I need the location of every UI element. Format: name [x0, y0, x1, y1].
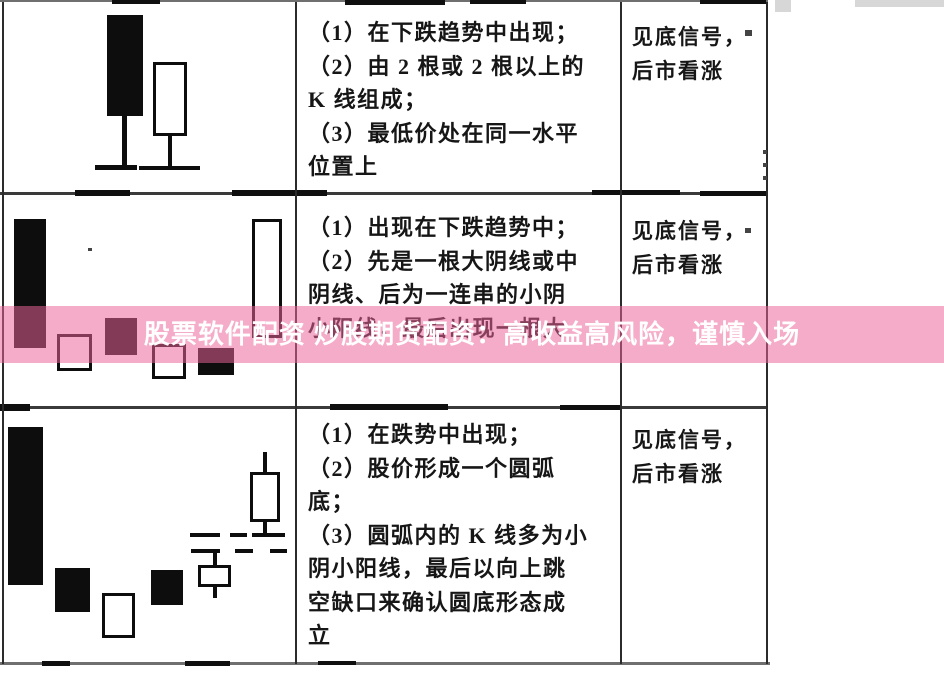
row-2-signal: 见底信号， 后市看涨: [632, 214, 747, 282]
table-border-bottom-segment: [42, 661, 70, 666]
desc-line: （1）出现在下跌趋势中；: [308, 211, 579, 245]
signal-line: 见底信号，: [632, 214, 747, 248]
table-border-top-segment: [700, 0, 766, 4]
row-separator-1-segment: [592, 190, 680, 195]
row-separator-1-segment: [700, 191, 766, 196]
candle-upper-wick: [213, 553, 217, 565]
row-3-signal: 见底信号， 后市看涨: [632, 423, 747, 491]
support-base-dash: [95, 165, 137, 170]
desc-line: K 线组成；: [308, 83, 585, 117]
row-1-signal: 见底信号， 后市看涨: [632, 20, 747, 88]
gap-dash: [235, 549, 253, 553]
scan-artifact: [855, 0, 944, 7]
desc-line: （2）先是一根大阴线或中: [308, 245, 579, 279]
table-border-bottom: [0, 662, 770, 665]
scan-artifact: [763, 150, 767, 154]
row-1-description: （1）在下跌趋势中出现； （2）由 2 根或 2 根以上的 K 线组成； （3）…: [308, 16, 585, 184]
desc-line: 空缺口来确认圆底形态成: [308, 586, 588, 620]
ad-banner-text: 股票软件配资 炒股期货配资：高收益高风险，谨慎入场: [144, 319, 800, 349]
signal-line: 见底信号，: [632, 20, 747, 54]
desc-line: 位置上: [308, 150, 585, 184]
signal-line: 后市看涨: [632, 457, 747, 491]
candle-bearish-body: [55, 568, 90, 612]
candle-lower-wick: [213, 587, 217, 598]
candle-bearish-body: [107, 15, 143, 116]
ad-banner: 股票软件配资 炒股期货配资：高收益高风险，谨慎入场: [0, 306, 944, 363]
desc-line: （3）最低价处在同一水平: [308, 117, 585, 151]
candle-lower-wick: [263, 522, 267, 533]
scan-artifact: [775, 0, 791, 12]
support-base-dash: [139, 166, 200, 170]
candle-lower-wick: [168, 136, 172, 167]
candle-bearish-body: [8, 427, 43, 585]
desc-line: （1）在跌势中出现；: [308, 418, 588, 452]
row-3-description: （1）在跌势中出现； （2）股价形成一个圆弧 底； （3）圆弧内的 K 线多为小…: [308, 418, 588, 653]
candle-lower-wick: [122, 116, 127, 167]
row-separator-2-segment: [330, 404, 448, 410]
desc-line: （1）在下跌趋势中出现；: [308, 16, 585, 50]
desc-line: （2）由 2 根或 2 根以上的: [308, 50, 585, 84]
row-separator-1-segment: [75, 190, 130, 196]
row-separator-1-segment: [232, 190, 327, 196]
table-border-bottom-segment: [185, 661, 230, 666]
gap-dash: [270, 549, 287, 553]
table-border-bottom-segment: [318, 661, 356, 665]
gap-dash: [191, 549, 220, 553]
candle-upper-wick: [263, 452, 267, 472]
gap-dash: [252, 533, 285, 537]
scan-artifact: [88, 248, 92, 251]
signal-line: 后市看涨: [632, 54, 747, 88]
candle-bullish-body: [102, 593, 135, 638]
gap-dash: [230, 533, 247, 537]
desc-line: （2）股价形成一个圆弧: [308, 452, 588, 486]
table-border-top-segment: [112, 0, 160, 4]
scan-artifact: [763, 176, 767, 180]
desc-line: 底；: [308, 485, 588, 519]
scanned-kline-pattern-table: （1）在下跌趋势中出现； （2）由 2 根或 2 根以上的 K 线组成； （3）…: [0, 0, 944, 673]
candle-bearish-body: [151, 570, 183, 605]
signal-line: 见底信号，: [632, 423, 747, 457]
row-separator-2-segment: [560, 405, 620, 410]
signal-line: 后市看涨: [632, 248, 747, 282]
table-border-top-segment: [470, 0, 526, 4]
candle-bullish-body: [250, 472, 280, 522]
row-separator-2-segment: [0, 404, 30, 411]
gap-dash: [190, 533, 220, 537]
desc-line: 阴小阳线，最后以向上跳: [308, 552, 588, 586]
scan-artifact: [763, 163, 767, 167]
table-border-top-segment: [345, 0, 445, 5]
desc-line: （3）圆弧内的 K 线多为小: [308, 519, 588, 553]
candle-bullish-body: [198, 565, 231, 587]
desc-line: 立: [308, 619, 588, 653]
candle-bullish-body: [153, 62, 187, 136]
